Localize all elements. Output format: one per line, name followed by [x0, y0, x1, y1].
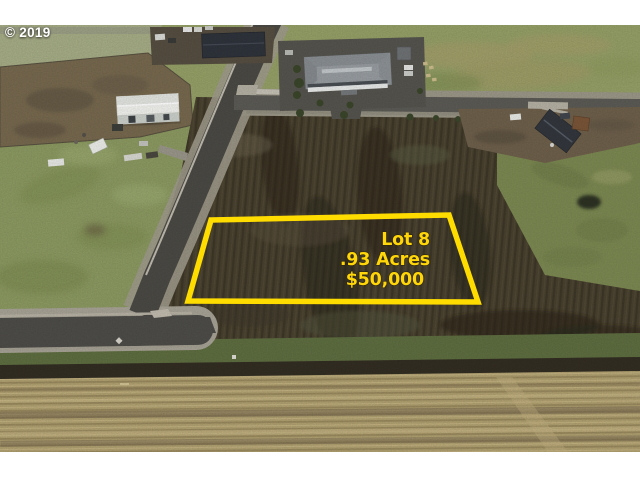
copyright-watermark: © 2019 — [5, 26, 51, 40]
film-grain — [0, 25, 640, 452]
aerial-photo: Lot 8 .93 Acres $50,000 — [0, 25, 640, 452]
bottom-white-border — [0, 452, 640, 480]
lot-label-line2: .93 Acres — [340, 250, 430, 270]
listing-photo-card: Lot 8 .93 Acres $50,000 © 2019 — [0, 0, 640, 480]
top-white-border — [0, 0, 640, 25]
lot-label-line1: Lot 8 — [381, 230, 430, 250]
lot-label-line3: $50,000 — [346, 270, 424, 290]
